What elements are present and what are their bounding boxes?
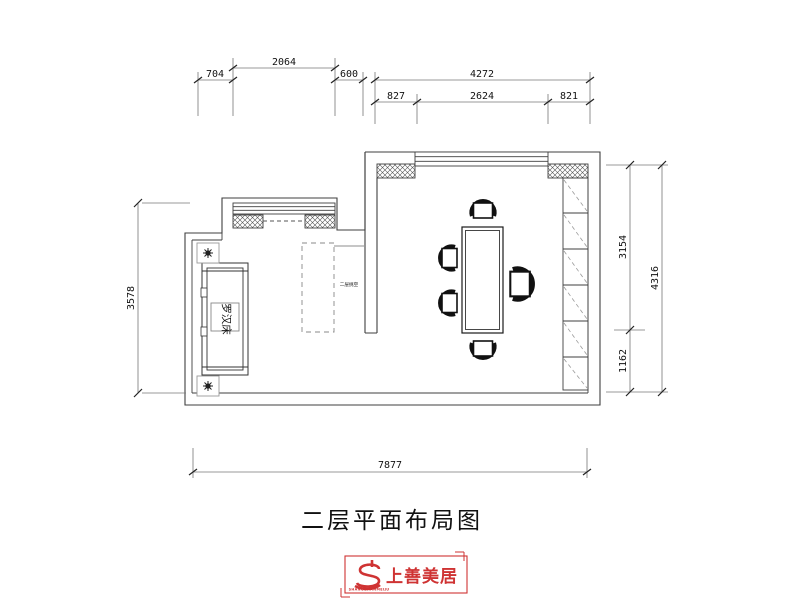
dim-7877: 7877 [378, 460, 402, 471]
chair-top [472, 201, 495, 218]
chair-right [510, 269, 532, 299]
dim-821: 821 [560, 91, 578, 102]
bed-label: 罗汉床 [220, 303, 233, 335]
bay-hatch-left [233, 215, 263, 228]
wall-hatch-right [548, 164, 588, 178]
window-top [415, 152, 548, 166]
interior-wall [365, 152, 377, 333]
dim-704: 704 [206, 69, 224, 80]
void-dashed-outline [302, 243, 334, 332]
dim-4316: 4316 [650, 266, 661, 290]
plant-stand-bottom [197, 376, 219, 396]
bay-hatch-right [305, 215, 335, 228]
void-label: 二层挑空 [340, 281, 359, 288]
dining-table [462, 227, 503, 333]
chair-left-2 [440, 292, 457, 315]
drawing-sheet: 罗汉床 二层挑空 [0, 0, 800, 600]
dim-2064: 2064 [272, 57, 296, 68]
plant-icon [203, 248, 213, 258]
plant-icon [203, 381, 213, 391]
chair-bottom [472, 341, 495, 358]
chair-left-1 [440, 247, 457, 270]
logo-brand-text: 上善美居 [386, 566, 458, 587]
dim-3154: 3154 [618, 235, 629, 259]
dim-827: 827 [387, 91, 405, 102]
dim-1162: 1162 [618, 349, 629, 373]
dim-600: 600 [340, 69, 358, 80]
window-bay-glazing [233, 203, 335, 214]
bay-window [233, 203, 335, 228]
logo-mark-icon [355, 560, 380, 589]
logo-subtext: SHANGSHANMEIJU [349, 588, 390, 592]
dim-4272: 4272 [470, 69, 494, 80]
floor-plan: 罗汉床 二层挑空 [0, 0, 800, 600]
wall-hatch-left [377, 164, 415, 178]
top-wall-right-room [377, 152, 588, 178]
dim-3578: 3578 [126, 286, 137, 310]
dims-left [134, 199, 190, 397]
plan-title: 二层平面布局图 [301, 508, 483, 533]
dim-2624: 2624 [470, 91, 494, 102]
brand-logo: SHANGSHANMEIJU 上善美居 [341, 552, 467, 597]
plant-stand-top [197, 243, 219, 263]
right-wall-panel [563, 178, 588, 390]
